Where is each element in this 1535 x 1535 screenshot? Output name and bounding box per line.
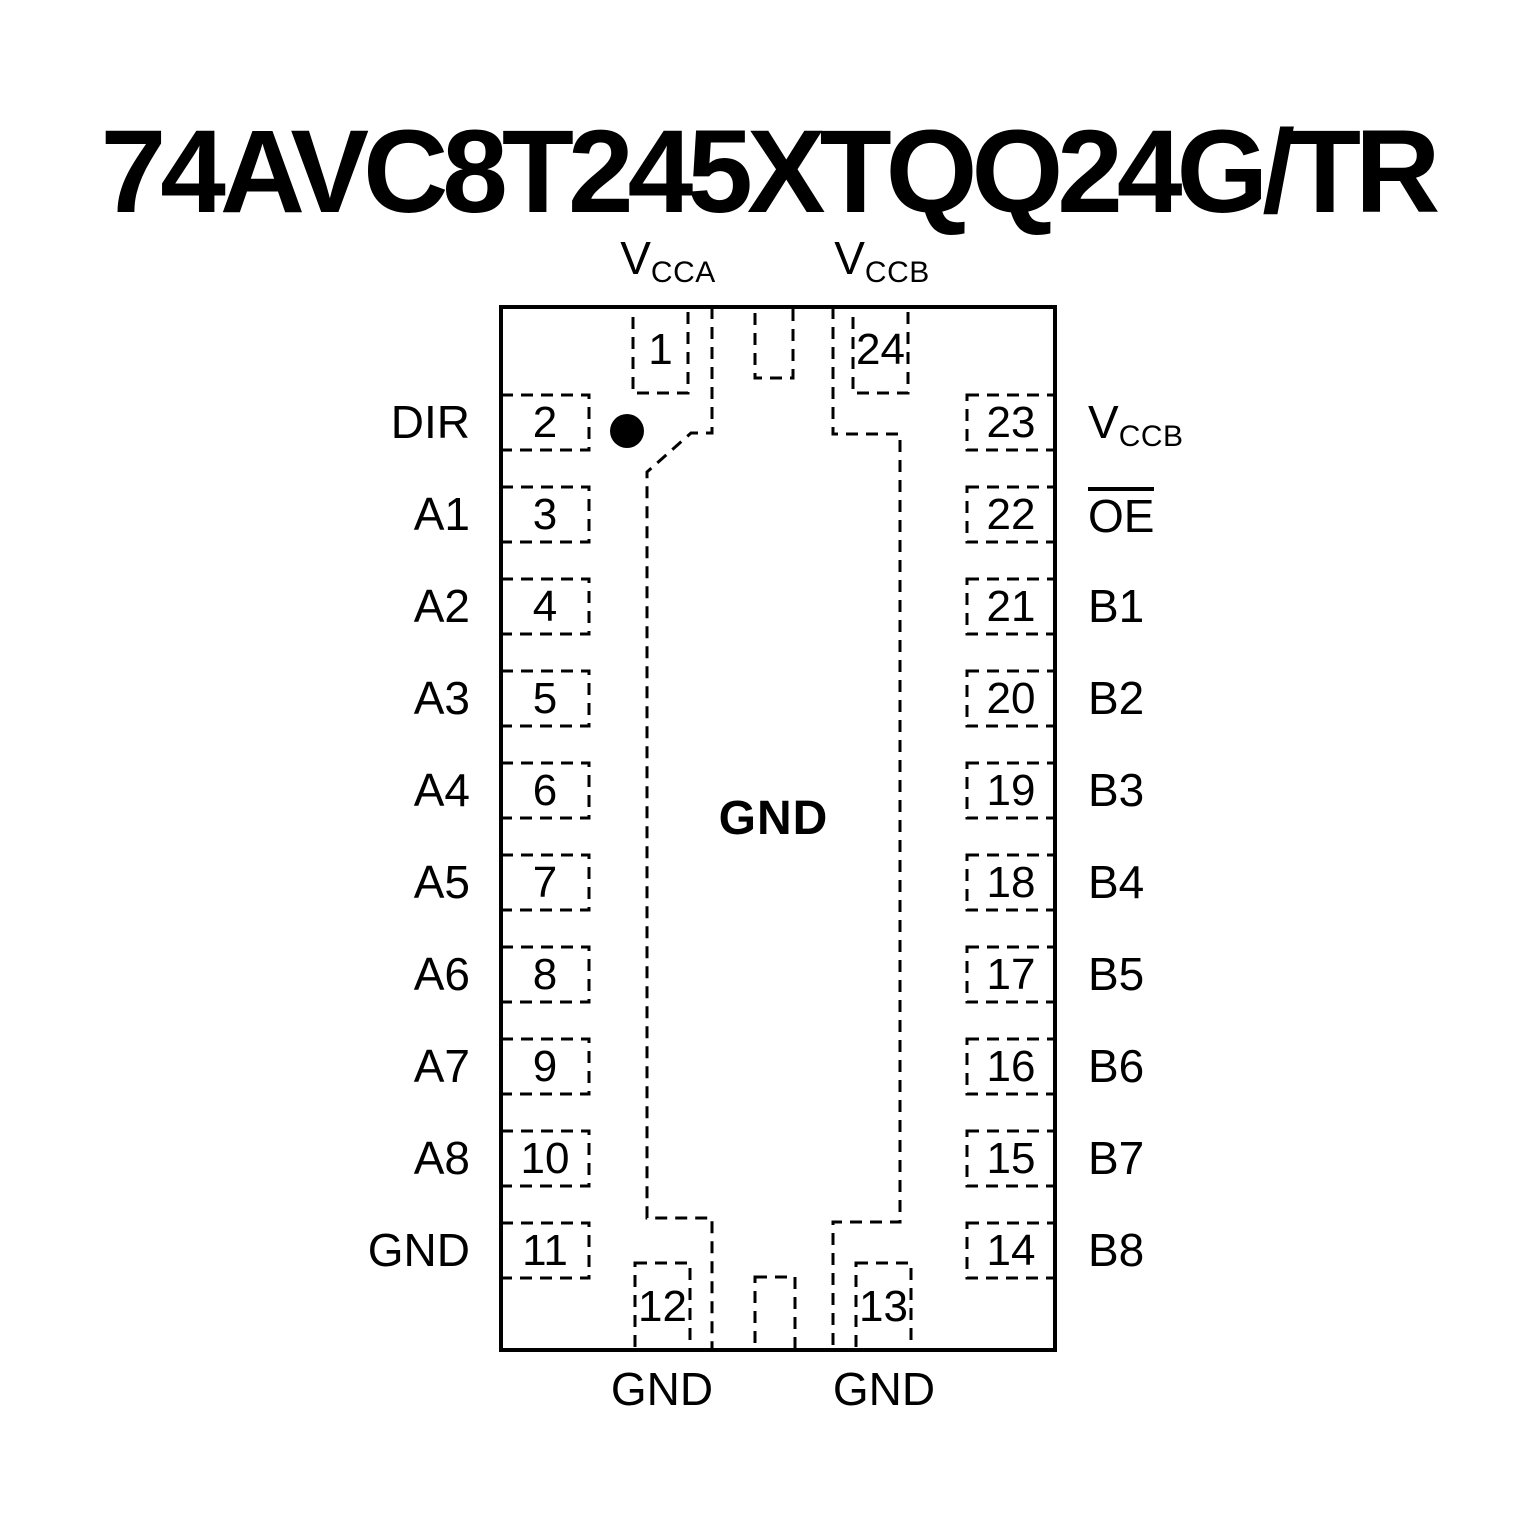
top-center-pad bbox=[755, 307, 793, 378]
pin-4-label: A2 bbox=[230, 579, 470, 634]
pin-15-label: B7 bbox=[1088, 1131, 1408, 1186]
vccb-subscript: CCB bbox=[865, 256, 930, 289]
pin-13-number: 13 bbox=[856, 1263, 911, 1350]
pin-9-number: 9 bbox=[501, 1039, 589, 1094]
thermal-pad-label: GND bbox=[647, 792, 900, 846]
pin-1-number: 1 bbox=[633, 307, 688, 393]
pin-24-label: VCCB bbox=[732, 230, 1032, 286]
pin-21-label: B1 bbox=[1088, 579, 1408, 634]
pin-17-number: 17 bbox=[967, 947, 1055, 1002]
pin-15-number: 15 bbox=[967, 1131, 1055, 1186]
pin-10-label: A8 bbox=[230, 1131, 470, 1186]
vccb-right-subscript: CCB bbox=[1119, 420, 1184, 453]
pin-6-number: 6 bbox=[501, 763, 589, 818]
vccb-base: V bbox=[834, 232, 865, 284]
pin-13-label: GND bbox=[734, 1362, 1034, 1417]
pin-5-number: 5 bbox=[501, 671, 589, 726]
pin-9-label: A7 bbox=[230, 1039, 470, 1094]
vccb-right-base: V bbox=[1088, 396, 1119, 448]
pin-10-number: 10 bbox=[501, 1131, 589, 1186]
pin-20-number: 20 bbox=[967, 671, 1055, 726]
pin-23-number: 23 bbox=[967, 395, 1055, 450]
pin-14-number: 14 bbox=[967, 1223, 1055, 1278]
pin-21-number: 21 bbox=[967, 579, 1055, 634]
vcca-base: V bbox=[620, 232, 651, 284]
pin-23-label: VCCB bbox=[1088, 395, 1408, 450]
bottom-center-pad bbox=[755, 1277, 795, 1350]
pin-3-label: A1 bbox=[230, 487, 470, 542]
pin-12-number: 12 bbox=[635, 1263, 690, 1350]
pin-22-label: OE bbox=[1088, 487, 1408, 542]
pin-8-number: 8 bbox=[501, 947, 589, 1002]
pin-6-label: A4 bbox=[230, 763, 470, 818]
pin-2-number: 2 bbox=[501, 395, 589, 450]
pin-22-number: 22 bbox=[967, 487, 1055, 542]
pin-19-label: B3 bbox=[1088, 763, 1408, 818]
pin-3-number: 3 bbox=[501, 487, 589, 542]
pin-8-label: A6 bbox=[230, 947, 470, 1002]
vcca-subscript: CCA bbox=[651, 256, 716, 289]
pin-18-number: 18 bbox=[967, 855, 1055, 910]
pin-19-number: 19 bbox=[967, 763, 1055, 818]
pin-17-label: B5 bbox=[1088, 947, 1408, 1002]
pin-7-label: A5 bbox=[230, 855, 470, 910]
pin1-indicator-dot bbox=[610, 414, 644, 448]
pin-14-label: B8 bbox=[1088, 1223, 1408, 1278]
pin-7-number: 7 bbox=[501, 855, 589, 910]
pin-18-label: B4 bbox=[1088, 855, 1408, 910]
pin-5-label: A3 bbox=[230, 671, 470, 726]
pin-16-label: B6 bbox=[1088, 1039, 1408, 1094]
pin-24-number: 24 bbox=[853, 307, 908, 393]
pin-11-number: 11 bbox=[501, 1223, 589, 1278]
pin-4-number: 4 bbox=[501, 579, 589, 634]
pin-2-label: DIR bbox=[230, 395, 470, 450]
pin-20-label: B2 bbox=[1088, 671, 1408, 726]
pin-16-number: 16 bbox=[967, 1039, 1055, 1094]
pin-11-label: GND bbox=[230, 1223, 470, 1278]
oe-active-low-label: OE bbox=[1088, 487, 1154, 539]
pinout-diagram-page: 74AVC8T245XTQQ24G/TR bbox=[0, 0, 1535, 1535]
